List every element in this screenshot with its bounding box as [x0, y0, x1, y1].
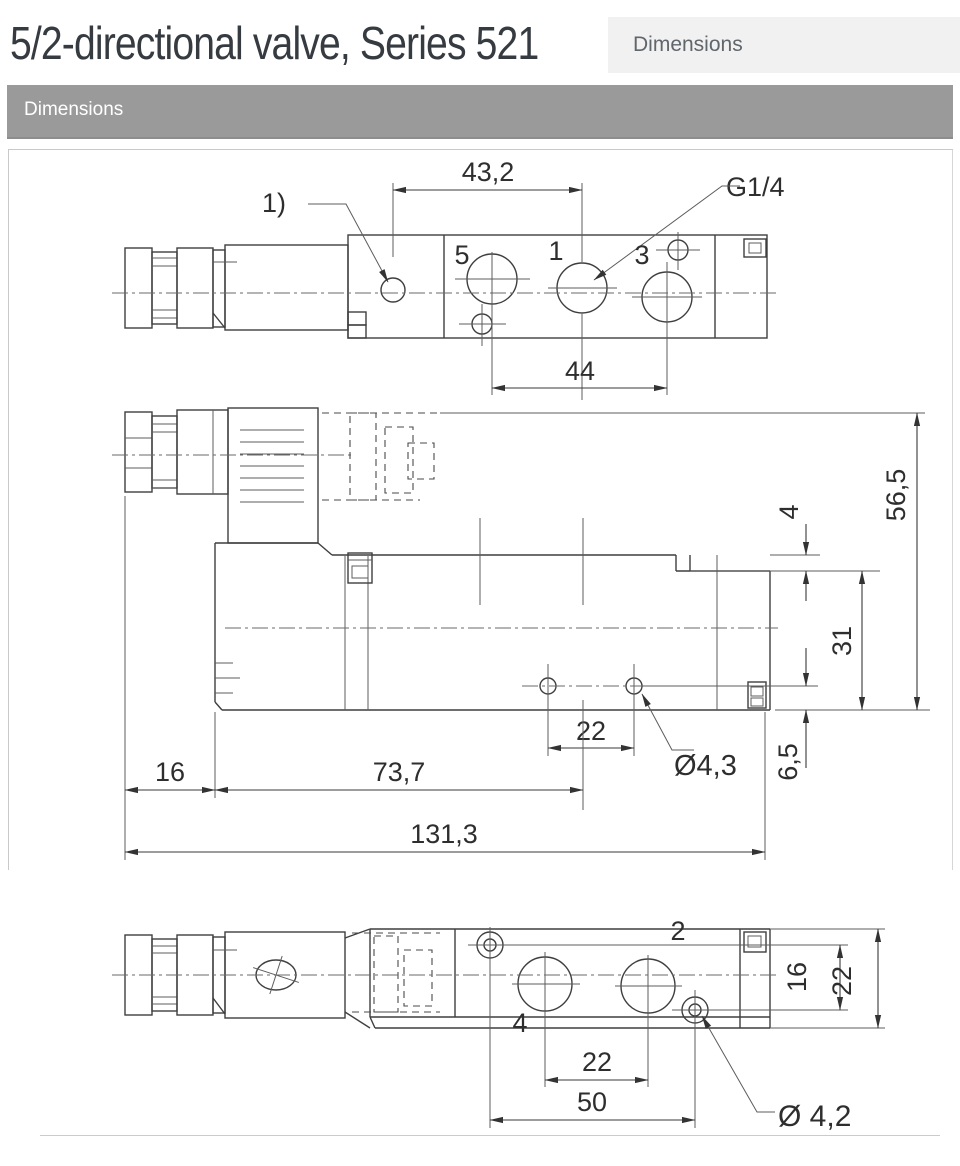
port-3-label: 3: [634, 240, 649, 270]
dim-31-label: 31: [827, 626, 857, 656]
top-view: 43,2 1) G1/4 5 1 3 44: [112, 157, 785, 400]
dim-131-3-label: 131,3: [410, 819, 478, 849]
dia-4-2-label: Ø 4,2: [778, 1100, 851, 1133]
dim-56-5-label: 56,5: [881, 469, 911, 522]
dim-16-bottom-label: 16: [782, 962, 812, 992]
dia-4-3-label: Ø4,3: [674, 750, 737, 782]
note-1-label: 1): [262, 188, 286, 218]
port-2-label: 2: [670, 916, 685, 946]
dim-16-side-label: 16: [155, 757, 185, 787]
bottom-view: 4 2 16 22 22 50 Ø 4,2: [112, 916, 885, 1133]
technical-drawing: 43,2 1) G1/4 5 1 3 44: [0, 0, 960, 1166]
dim-73-7-label: 73,7: [373, 757, 426, 787]
dim-6-5-label: 6,5: [773, 743, 803, 781]
dim-50-label: 50: [577, 1087, 607, 1117]
port-4-label: 4: [512, 1008, 527, 1038]
dim-22-right-label: 22: [827, 966, 857, 996]
thread-g14-label: G1/4: [726, 172, 785, 202]
dim-43-2-label: 43,2: [462, 157, 515, 187]
dim-4-label: 4: [774, 504, 804, 519]
side-view: 4 31 56,5 6,5 22 Ø4,3 16 73,7 131,3: [112, 408, 930, 860]
port-1-label: 1: [548, 236, 563, 266]
dim-22-bottom-label: 22: [582, 1047, 612, 1077]
port-5-label: 5: [454, 240, 469, 270]
dim-22-side-label: 22: [576, 716, 606, 746]
dim-44-label: 44: [565, 356, 595, 386]
